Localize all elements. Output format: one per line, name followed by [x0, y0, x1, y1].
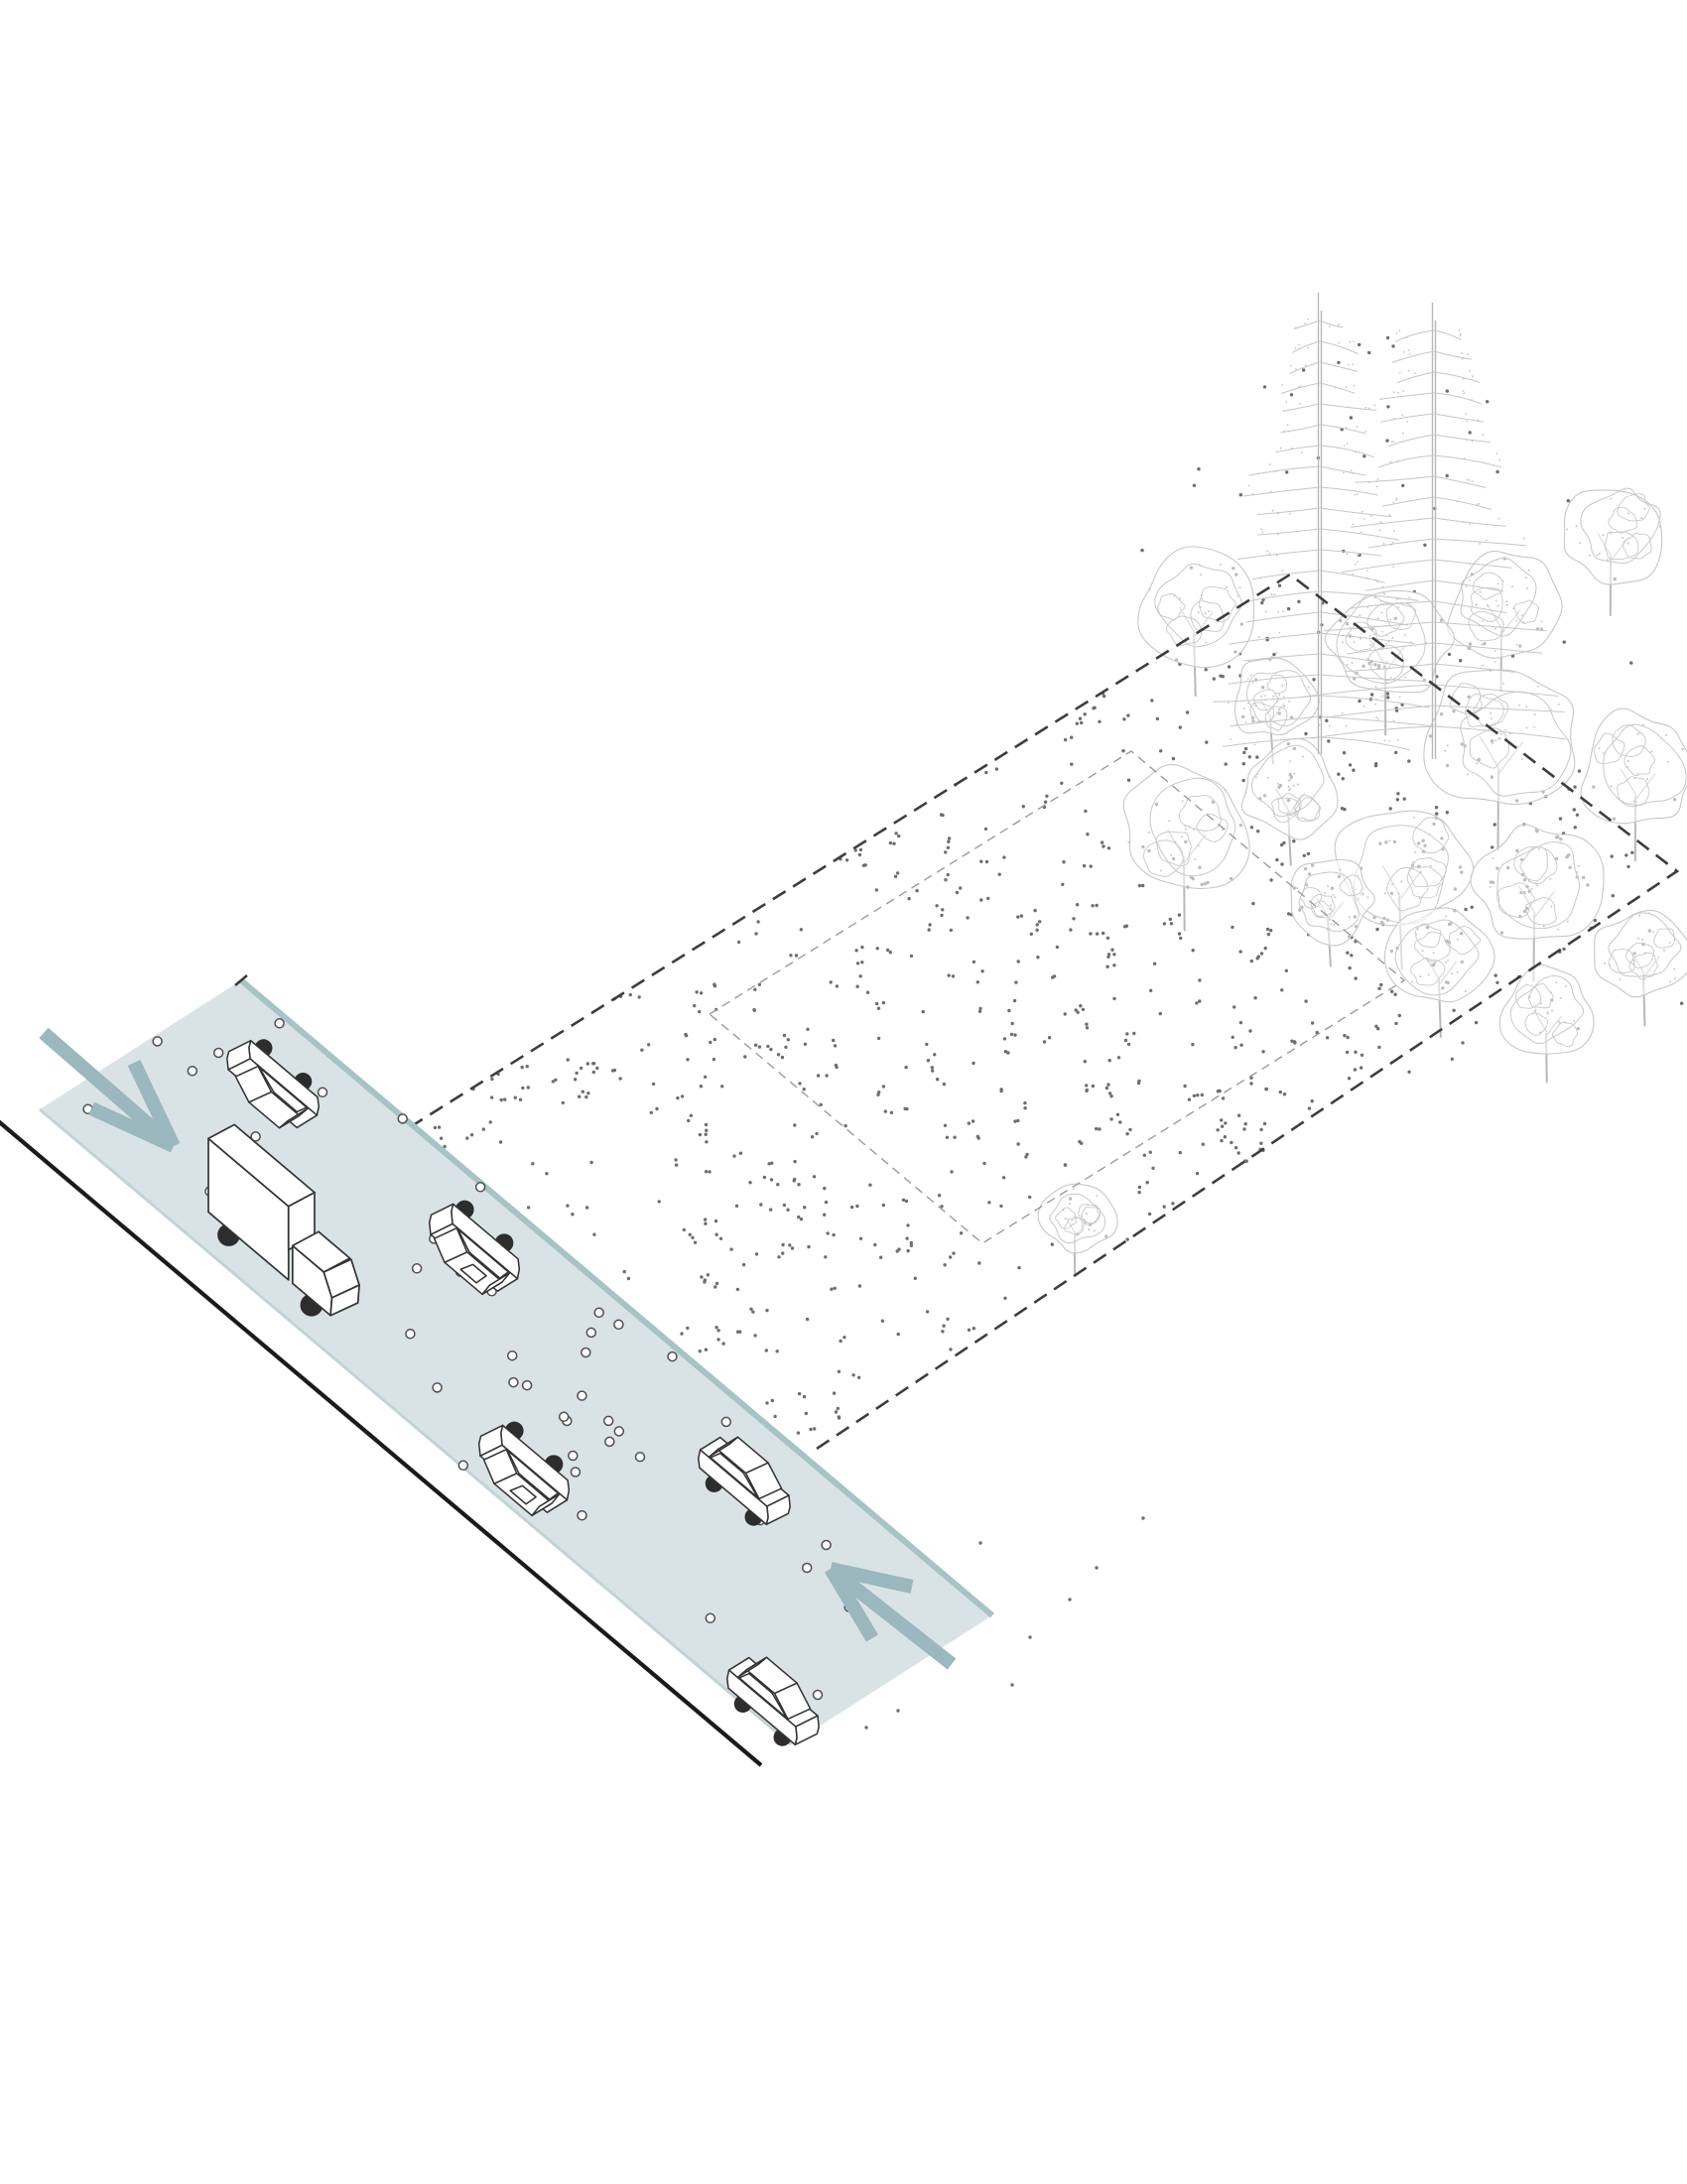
tree-foliage-dot [1531, 888, 1533, 890]
conifer-needle-dot [1283, 574, 1285, 576]
tree-foliage-dot [1388, 839, 1390, 841]
road-stipple-circle [458, 1461, 467, 1470]
road-stipple-circle [508, 1351, 517, 1360]
stipple-dot [836, 984, 839, 987]
stipple-dot [1401, 484, 1404, 487]
tree-foliage-dot [1611, 785, 1613, 787]
conifer-branch [1351, 518, 1434, 527]
stipple-dot [611, 1069, 614, 1072]
stipple-dot [803, 1088, 806, 1091]
conifer-needle-dot [1466, 421, 1468, 423]
conifer-branch [1434, 330, 1461, 340]
stipple-dot [769, 1208, 772, 1211]
stipple-dot [1163, 922, 1166, 925]
conifer-needle-dot [1290, 365, 1292, 367]
stipple-dot [859, 974, 862, 977]
tree-foliage-dot [1074, 1216, 1076, 1218]
stipple-dot [777, 1053, 780, 1056]
conifer-branch [1434, 351, 1472, 359]
conifer-needle-dot [1287, 424, 1289, 426]
conifer-needle-dot [1382, 591, 1384, 593]
stipple-dot [788, 1243, 791, 1246]
tree-foliage-dot [1477, 762, 1479, 764]
stipple-dot [886, 949, 889, 952]
conifer-needle-dot [1351, 470, 1353, 472]
stipple-dot [732, 1154, 735, 1157]
stipple-dot [571, 1213, 574, 1216]
conifer-branch [1395, 330, 1434, 341]
road-stipple-circle [406, 1330, 415, 1339]
stipple-dot [897, 1333, 900, 1336]
stipple-dot [1033, 909, 1036, 912]
stipple-dot [1308, 1106, 1311, 1109]
stipple-dot [595, 1067, 598, 1070]
tree-foliage-dot [1397, 893, 1399, 895]
tree-foliage-dot [1528, 570, 1530, 572]
conifer-needle-dot [1371, 664, 1373, 666]
stipple-dot [690, 1114, 693, 1117]
stipple-dot [545, 1172, 548, 1175]
stipple-dot [1141, 884, 1144, 887]
stipple-dot [890, 1111, 893, 1114]
conifer-needle-dot [1393, 530, 1395, 532]
tree-foliage-dot [1415, 934, 1417, 936]
stipple-dot [1148, 1213, 1151, 1216]
conifer-needle-dot [1300, 385, 1302, 387]
tree-foliage-dot [1565, 985, 1567, 987]
stipple-dot [629, 993, 632, 996]
stipple-dot [1354, 1051, 1357, 1054]
tree-foliage-dot [1602, 534, 1604, 536]
stipple-dot [793, 1123, 796, 1126]
stipple-dot [1260, 601, 1263, 604]
conifer-needle-dot [1482, 665, 1484, 667]
conifer-branch [1281, 383, 1320, 394]
tree-foliage-dot [1445, 962, 1447, 964]
tree-foliage-dot [1283, 697, 1285, 699]
stipple-dot [1393, 993, 1396, 996]
stipple-dot [1017, 960, 1020, 963]
conifer-needle-dot [1366, 658, 1368, 660]
stipple-dot [915, 889, 918, 892]
road-stipple-circle [614, 1427, 623, 1436]
conifer-needle-dot [1486, 540, 1488, 542]
tree-foliage-dot [1648, 912, 1650, 914]
tree-foliage-dot [1412, 861, 1414, 863]
stipple-dot [1107, 846, 1110, 849]
stipple-dot [1035, 929, 1038, 932]
stipple-dot [1128, 1128, 1131, 1131]
stipple-dot [739, 1152, 742, 1155]
tree-foliage-dot [1148, 832, 1150, 834]
tree-foliage-dot [1604, 963, 1606, 964]
tree-foliage-dot [1076, 1217, 1078, 1219]
stipple-dot [1006, 1051, 1009, 1054]
stipple-dot [1327, 739, 1330, 742]
stipple-dot [795, 954, 798, 957]
stipple-dot [1348, 966, 1351, 969]
conifer-needle-dot [1364, 431, 1366, 433]
conifer-needle-dot [1386, 682, 1388, 684]
stipple-dot [784, 1046, 787, 1049]
stipple-dot [695, 990, 698, 993]
stipple-dot [1297, 600, 1300, 603]
stipple-dot [514, 1096, 517, 1099]
tree-foliage-dot [1205, 612, 1207, 614]
stipple-dot [1343, 808, 1346, 811]
conifer-branch [1434, 393, 1482, 404]
stipple-dot [1191, 1043, 1194, 1046]
conifer-needle-dot [1350, 341, 1352, 343]
stipple-dot [953, 1136, 956, 1139]
stipple-dot [1023, 1101, 1026, 1104]
conifer-needle-dot [1366, 606, 1368, 608]
conifer-needle-dot [1329, 325, 1331, 327]
stipple-dot [1407, 759, 1410, 762]
conifer-branch [1320, 550, 1381, 556]
stipple-dot [882, 1204, 885, 1207]
road-stipple-circle [571, 1468, 580, 1477]
stipple-dot [860, 946, 863, 949]
stipple-dot [813, 1175, 816, 1178]
stipple-dot [905, 1236, 908, 1239]
tree-foliage-dot [1627, 760, 1629, 762]
tree-foliage-dot [1289, 788, 1291, 790]
stipple-dot [798, 1392, 801, 1395]
tree-foliage-dot [1567, 921, 1569, 923]
stipple-dot [1304, 732, 1307, 735]
conifer-needle-dot [1409, 353, 1411, 355]
tree-foliage-dot [1071, 1220, 1073, 1221]
stipple-dot [1290, 393, 1293, 396]
stipple-dot [755, 1252, 758, 1255]
tree-foliage-dot [1497, 582, 1499, 584]
stipple-dot [968, 1329, 971, 1332]
stipple-dot [976, 1135, 979, 1138]
conifer-needle-dot [1478, 420, 1480, 422]
stipple-dot [1354, 1068, 1357, 1071]
stipple-dot [944, 850, 947, 853]
stipple-dot [1045, 795, 1048, 798]
conifer-needle-dot [1295, 327, 1297, 329]
tree-foliage-dot [1201, 598, 1203, 600]
stipple-dot [984, 828, 987, 831]
stipple-dot [749, 1308, 752, 1311]
conifer-needle-dot [1344, 445, 1346, 447]
tree-foliage-dot [1526, 587, 1528, 589]
stipple-dot [1086, 1026, 1089, 1029]
stipple-dot [833, 1391, 836, 1394]
conifer-needle-dot [1381, 612, 1383, 614]
stipple-dot [1149, 1151, 1152, 1154]
road-stipple-circle [668, 1352, 677, 1361]
stipple-dot [1407, 1071, 1410, 1074]
tree-foliage-dot [1434, 962, 1436, 964]
stipple-dot [580, 1067, 583, 1070]
tree-foliage-dot [1184, 825, 1186, 827]
stipple-dot [1354, 976, 1357, 979]
conifer-needle-dot [1393, 418, 1395, 420]
stipple-dot [977, 1261, 980, 1264]
stipple-dot [1061, 883, 1064, 886]
stipple-dot [1014, 980, 1017, 983]
tree-foliage-dot [1278, 694, 1280, 696]
stipple-dot [640, 1049, 643, 1052]
tree-foliage-dot [1428, 973, 1430, 975]
stipple-dot [686, 1058, 689, 1061]
stipple-dot [938, 1194, 941, 1197]
stipple-dot [765, 1349, 768, 1351]
tree-foliage-dot [1505, 600, 1507, 602]
stipple-dot [1076, 903, 1079, 906]
stipple-dot [876, 1093, 879, 1096]
stipple-dot [1013, 1119, 1016, 1122]
stipple-dot [1085, 1084, 1088, 1087]
stipple-dot [1183, 1085, 1186, 1088]
conifer-needle-dot [1357, 493, 1359, 495]
conifer-needle-dot [1383, 543, 1385, 545]
conifer-needle-dot [1502, 580, 1504, 582]
stipple-dot [562, 1101, 565, 1104]
stipple-dot [1138, 884, 1141, 887]
road-stipple-circle [153, 1037, 162, 1046]
stipple-dot [1106, 937, 1109, 940]
conifer-needle-dot [1461, 352, 1463, 354]
stipple-dot [834, 1287, 837, 1290]
tree-foliage-dot [1525, 726, 1527, 728]
conifer-needle-dot [1247, 703, 1249, 705]
stipple-dot [797, 1216, 800, 1219]
tree-foliage-dot [1444, 750, 1446, 752]
tree-foliage-dot [1652, 931, 1654, 933]
conifer-branch [1248, 466, 1320, 475]
tree-foliage-dot [1589, 555, 1591, 557]
conifer-needle-dot [1533, 726, 1535, 728]
conifer-needle-dot [1363, 518, 1365, 520]
stipple-dot [704, 1278, 707, 1281]
stipple-dot [715, 1282, 718, 1285]
stipple-dot [1377, 987, 1380, 990]
tree-foliage-dot [1490, 886, 1492, 888]
tree-foliage-dot [1500, 733, 1502, 735]
stipple-dot [825, 1201, 828, 1204]
conifer-needle-dot [1393, 441, 1395, 443]
stipple-dot [1220, 1118, 1223, 1121]
stipple-dot [925, 1043, 928, 1046]
stipple-dot [956, 891, 959, 894]
stipple-dot [947, 840, 950, 843]
conifer-needle-dot [1476, 603, 1478, 605]
tree-foliage-dot [1511, 585, 1513, 587]
tree-foliage-dot [1681, 748, 1683, 750]
conifer-needle-dot [1363, 706, 1364, 707]
stipple-dot [1311, 1099, 1314, 1102]
conifer-needle-dot [1280, 739, 1282, 741]
conifer-branch [1356, 476, 1434, 482]
tree-foliage-dot [1297, 784, 1299, 786]
conifer-branch [1320, 508, 1391, 517]
stipple-dot [805, 1412, 808, 1415]
road-stipple-circle [509, 1378, 518, 1387]
road-stipple-circle [604, 1416, 613, 1425]
conifer-needle-dot [1352, 472, 1354, 474]
conifer-needle-dot [1299, 403, 1301, 405]
road-stipple-circle [398, 1114, 407, 1123]
stipple-dot [586, 1062, 589, 1065]
conifer-needle-dot [1498, 518, 1500, 520]
conifer-needle-dot [1375, 716, 1377, 718]
conifer-needle-dot [1348, 364, 1350, 366]
stipple-dot [1275, 858, 1278, 861]
conifer-needle-dot [1389, 619, 1391, 621]
stipple-dot [1196, 1093, 1199, 1096]
tree-foliage-dot [1367, 896, 1369, 898]
stipple-dot [705, 1129, 708, 1132]
tree-foliage-dot [1377, 617, 1379, 619]
road-stipple-circle [605, 1437, 614, 1446]
stipple-dot [1269, 878, 1272, 881]
conifer-branch [1320, 487, 1378, 495]
stipple-dot [1337, 773, 1340, 776]
stipple-dot [503, 1097, 506, 1100]
conifer-branch [1246, 612, 1320, 622]
tree-foliage-dot [1283, 706, 1285, 707]
tree-foliage-dot [1095, 1220, 1097, 1222]
conifer-branch [1392, 351, 1434, 362]
conifer-needle-dot [1541, 620, 1543, 622]
conifer-branch [1434, 455, 1502, 467]
conifer-branch [1342, 560, 1434, 573]
stipple-dot [1159, 1012, 1162, 1015]
tree-foliage-dot [1267, 777, 1269, 779]
stipple-dot [1095, 1127, 1098, 1130]
stipple-dot [1064, 738, 1067, 741]
stipple-dot [1011, 1022, 1014, 1025]
stipple-dot [592, 1233, 595, 1236]
stipple-dot [1237, 1151, 1240, 1154]
stipple-dot [1056, 946, 1059, 949]
stipple-dot [1198, 978, 1201, 981]
tree-foliage-dot [1281, 685, 1283, 687]
stipple-dot [687, 1119, 690, 1122]
stipple-dot [714, 1285, 716, 1288]
stipple-dot [1264, 1088, 1267, 1091]
stipple-dot [1079, 717, 1082, 720]
stipple-dot [1337, 361, 1340, 364]
stipple-dot [1389, 807, 1392, 810]
conifer-branch [1434, 476, 1487, 488]
conifer-needle-dot [1408, 370, 1410, 372]
stipple-dot [752, 1008, 755, 1011]
stipple-dot [864, 1726, 867, 1729]
stipple-dot [1193, 484, 1196, 487]
stipple-dot [824, 1255, 827, 1258]
conifer-needle-dot [1247, 678, 1249, 680]
tree-foliage-dot [1327, 885, 1329, 887]
tree-foliage-dot [1419, 975, 1421, 977]
conifer-needle-dot [1500, 690, 1502, 692]
road-stipple-circle [413, 1264, 422, 1273]
stipple-dot [985, 860, 988, 863]
conifer-needle-dot [1356, 616, 1358, 618]
stipple-dot [693, 1004, 696, 1007]
tree-foliage-dot [1255, 776, 1257, 778]
stipple-dot [735, 1205, 738, 1208]
tree-foliage-dot [1465, 990, 1467, 992]
conifer-needle-dot [1460, 335, 1462, 337]
tree-foliage-dot [1627, 512, 1629, 514]
tree-foliage-dot [1512, 607, 1514, 609]
stipple-dot [1202, 1143, 1205, 1146]
tree-canopy [1123, 764, 1249, 888]
stipple-dot [776, 1183, 779, 1186]
stipple-dot [941, 1330, 944, 1333]
conifer-needle-dot [1386, 625, 1388, 627]
conifer-needle-dot [1471, 399, 1473, 401]
road-stipple-circle [214, 1049, 223, 1058]
stipple-dot [1394, 1022, 1397, 1025]
stipple-dot [1629, 661, 1632, 664]
stipple-dot [1192, 949, 1195, 952]
stipple-dot [804, 1043, 807, 1046]
conifer-needle-dot [1258, 720, 1260, 722]
stipple-dot [950, 929, 953, 932]
stipple-dot [1435, 812, 1438, 815]
conifer-needle-dot [1335, 365, 1337, 367]
stipple-dot [1023, 1106, 1026, 1109]
tree-foliage-dot [1673, 968, 1675, 970]
stipple-dot [742, 1263, 745, 1266]
conifer-needle-dot [1251, 493, 1253, 495]
stipple-dot [756, 920, 759, 923]
stipple-dot [1220, 1139, 1223, 1142]
stipple-dot [1222, 675, 1225, 678]
conifer-needle-dot [1397, 461, 1399, 463]
stipple-dot [705, 1349, 708, 1351]
tree-foliage-dot [1555, 981, 1557, 983]
tree-foliage-dot [1419, 897, 1421, 899]
stipple-dot [1069, 928, 1072, 931]
road-stipple-circle [582, 1349, 590, 1357]
tree-foliage-dot [1413, 817, 1415, 819]
stipple-dot [935, 904, 938, 907]
stipple-dot [902, 1199, 905, 1202]
stipple-dot [1156, 717, 1159, 720]
stipple-dot [758, 1045, 761, 1048]
stipple-dot [519, 1098, 522, 1101]
tree-foliage-dot [1293, 785, 1295, 787]
stipple-dot [584, 1095, 587, 1098]
stipple-dot [868, 1184, 871, 1187]
deciduous-tree [1564, 488, 1661, 616]
stipple-dot [1244, 747, 1247, 750]
conifer-needle-dot [1366, 570, 1368, 572]
stipple-dot [751, 1310, 754, 1313]
conifer-needle-dot [1457, 501, 1459, 503]
tree-foliage-dot [1220, 564, 1222, 566]
stipple-dot [896, 1249, 899, 1252]
stipple-dot [949, 1348, 952, 1350]
stipple-dot [1149, 989, 1152, 992]
stipple-dot [1260, 952, 1263, 955]
tree-foliage-dot [1083, 1219, 1085, 1220]
stipple-dot [1343, 751, 1346, 754]
stipple-dot [771, 1399, 774, 1402]
stipple-dot [1241, 779, 1244, 782]
stipple-dot [434, 1126, 437, 1129]
tree-foliage-dot [1490, 712, 1492, 714]
tree-foliage-dot [1650, 751, 1652, 753]
